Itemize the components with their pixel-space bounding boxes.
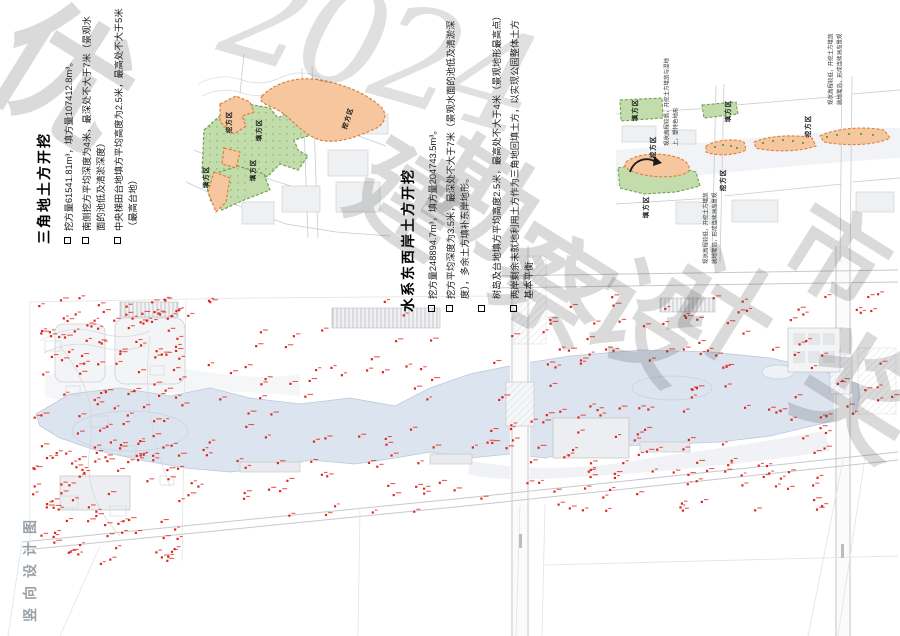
map-triangle-cut-fill: 挖方区填方区填方区填方区挖方区 bbox=[186, 54, 390, 238]
section-title-river: 水系东西岸土方开挖 bbox=[398, 14, 418, 312]
bullet-list-triangle: 挖方量61541.81m³，填方量107412.8m³。南侧挖方平均深度为4米，… bbox=[63, 8, 141, 244]
bullet-square-icon bbox=[114, 237, 121, 244]
bullet-square-icon bbox=[478, 305, 485, 312]
section-title-triangle: 三角地土方开挖 bbox=[34, 8, 54, 244]
bullet-square-icon bbox=[82, 237, 89, 244]
bullet-item: 挖方平均深度为3.5米，最深处不大于7米（景观水面的池低及清淤深度），多余土方填… bbox=[445, 14, 473, 312]
bullet-list-river: 挖方量248894.7m³，填方量204743.5m³。挖方平均深度为3.5米，… bbox=[427, 14, 537, 312]
section-triangle-earthwork: 三角地土方开挖 挖方量61541.81m³，填方量107412.8m³。南侧挖方… bbox=[34, 8, 145, 244]
bullet-item: 挖方量248894.7m³，填方量204743.5m³。 bbox=[427, 14, 441, 312]
sheet-title-vertical: 竖向设计图 bbox=[20, 512, 40, 622]
bullet-item: 南侧挖方平均深度为4米，最深处不大于7米（景观水面的池低及清淤深度） bbox=[81, 8, 109, 244]
bullet-item: 中央梯田台地填方平均高度为2.5米，最高处不大于5米（最高台地） bbox=[113, 8, 141, 244]
map-river-cut-fill: 填方区挖方区填方区挖方区填方区挖方区现状高程较高，开挖土方堆放与湿地上，塑特色地… bbox=[616, 50, 900, 262]
bullet-item: 挖方量61541.81m³，填方量107412.8m³。 bbox=[63, 8, 77, 244]
map-river-art bbox=[616, 50, 900, 262]
bullet-square-icon bbox=[428, 305, 435, 312]
bullet-square-icon bbox=[64, 237, 71, 244]
bullet-square-icon bbox=[510, 305, 517, 312]
design-sheet: 优2024建勘察设计市奖 三角地土方开挖 挖方量61541.81m³，填方量10… bbox=[0, 0, 900, 636]
map-triangle-art bbox=[186, 54, 390, 238]
bullet-square-icon bbox=[446, 305, 453, 312]
bullet-item: 树岛及台地填方平均高度2.5米，最高处不大于4米（景观地形最高点） bbox=[477, 14, 505, 312]
bullet-item: 两岸剩余未就地利用土方作为三角地回填土方，以实现公园整体土方基本平衡 bbox=[509, 14, 537, 312]
section-river-earthwork: 水系东西岸土方开挖 挖方量248894.7m³，填方量204743.5m³。挖方… bbox=[398, 14, 541, 312]
